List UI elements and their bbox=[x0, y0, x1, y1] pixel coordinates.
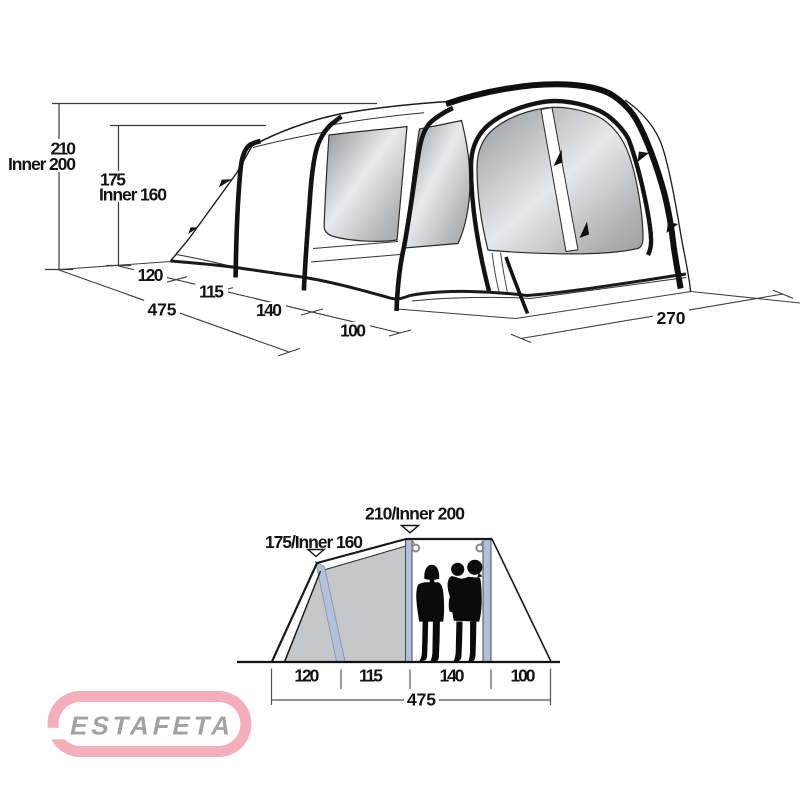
svg-text:140: 140 bbox=[256, 300, 282, 320]
svg-text:Inner 200: Inner 200 bbox=[8, 154, 76, 174]
svg-text:120: 120 bbox=[138, 265, 164, 285]
svg-text:120: 120 bbox=[294, 666, 319, 686]
svg-text:Inner 160: Inner 160 bbox=[99, 185, 167, 205]
svg-text:115: 115 bbox=[199, 282, 224, 302]
svg-text:210/Inner 200: 210/Inner 200 bbox=[365, 504, 465, 524]
svg-text:475: 475 bbox=[148, 300, 177, 320]
svg-text:475: 475 bbox=[407, 690, 436, 710]
svg-text:270: 270 bbox=[657, 308, 686, 328]
svg-text:115: 115 bbox=[359, 666, 383, 686]
svg-text:100: 100 bbox=[511, 666, 536, 686]
svg-text:140: 140 bbox=[440, 666, 465, 686]
svg-text:100: 100 bbox=[340, 321, 366, 341]
